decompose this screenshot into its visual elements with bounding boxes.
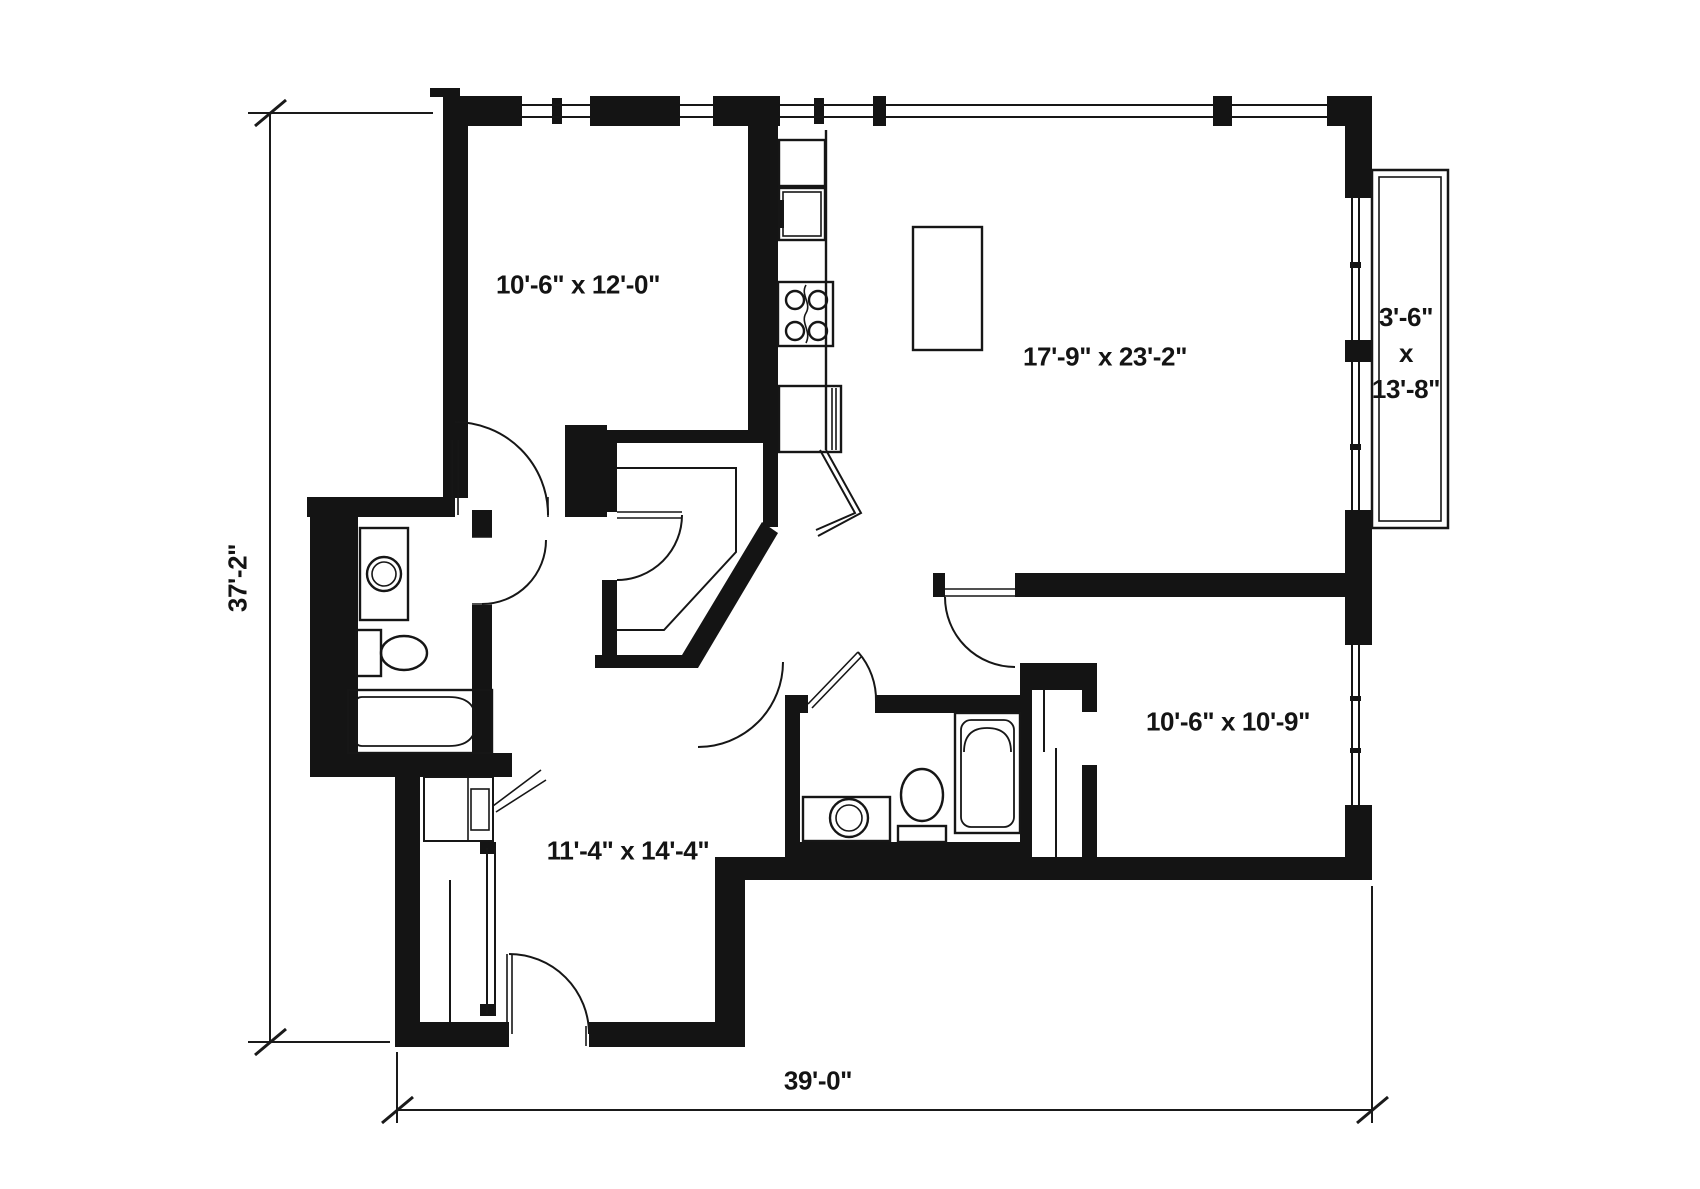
wall-pier bbox=[565, 425, 607, 517]
window-top-2 bbox=[680, 105, 713, 117]
wall-top-seg3 bbox=[713, 96, 780, 126]
window-mullion-1 bbox=[552, 98, 562, 124]
wall-left-bedroom1 bbox=[443, 96, 468, 498]
bedroom-3-dimensions-label: 10'-6" x 10'-9" bbox=[1146, 707, 1310, 738]
wall-top-corner bbox=[1327, 96, 1372, 126]
burner-4 bbox=[809, 322, 827, 340]
tub-2-head-curve bbox=[964, 728, 1011, 752]
kitchen-island bbox=[913, 227, 982, 350]
balcony-width-label: 3'-6" bbox=[1372, 299, 1440, 335]
refrigerator-inner bbox=[783, 192, 821, 236]
refrigerator bbox=[779, 188, 825, 240]
tub-1-outer bbox=[348, 690, 492, 753]
wall-top-cap bbox=[430, 88, 460, 97]
wall-top-seg5 bbox=[1213, 96, 1232, 126]
window-top-5 bbox=[1232, 105, 1327, 117]
wall-bed3-closet-stub-top bbox=[1082, 690, 1097, 712]
wall-bed3-closet-top bbox=[1020, 663, 1097, 690]
balcony-length-label: 13'-8" bbox=[1372, 371, 1440, 407]
floor-plan-drawing bbox=[0, 0, 1700, 1189]
bedroom1-door-arc bbox=[455, 422, 548, 515]
toilet-1-bowl bbox=[381, 636, 427, 670]
bedroom3-closet-slider bbox=[1044, 690, 1056, 857]
balcony-slider-lower bbox=[1352, 362, 1359, 510]
wall-bath1-right-a bbox=[472, 510, 492, 537]
overall-depth-dimension-label: 37'-2" bbox=[223, 544, 254, 612]
wall-bed3-closet-stub-bottom bbox=[1082, 765, 1097, 857]
dishwasher-lines bbox=[832, 388, 836, 450]
balcony-slider-upper bbox=[1352, 198, 1359, 340]
wall-bath2-top bbox=[875, 695, 1032, 713]
wall-right-upper bbox=[1345, 126, 1372, 198]
wall-living-bed3-b bbox=[1015, 573, 1347, 597]
bathroom2-door-leaf bbox=[808, 652, 862, 708]
wall-closet-left-b bbox=[602, 580, 617, 655]
living-dining-dimensions-label: 17'-9" x 23'-2" bbox=[1023, 342, 1187, 373]
window-top-4 bbox=[886, 105, 1213, 117]
bathroom1-door-arc bbox=[482, 540, 546, 604]
wardrobe-inner bbox=[471, 789, 489, 830]
toilet-1-tank bbox=[356, 630, 381, 676]
wall-bottom-step bbox=[715, 880, 745, 1047]
kitchen bbox=[778, 130, 982, 536]
upper-cabinet bbox=[779, 140, 825, 186]
bathroom-1 bbox=[348, 510, 492, 753]
bedroom-2-dimensions-label: 11'-4" x 14'-4" bbox=[547, 836, 710, 867]
balcony-separator-label: x bbox=[1372, 335, 1440, 371]
bedroom3-door-leaf bbox=[945, 589, 1015, 596]
window-top-3 bbox=[780, 105, 873, 117]
bedroom2-hall-door-arc bbox=[698, 662, 783, 747]
wall-top-seg2 bbox=[590, 96, 680, 126]
entry-door-arc bbox=[509, 954, 589, 1034]
burner-3 bbox=[786, 322, 804, 340]
wardrobe bbox=[424, 777, 493, 841]
bedroom-1-dimensions-label: 10'-6" x 12'-0" bbox=[496, 270, 660, 301]
wall-right-mid bbox=[1345, 510, 1372, 645]
bathroom2-door-arc bbox=[858, 652, 876, 702]
wall-closet-right bbox=[763, 443, 778, 527]
burner-2 bbox=[809, 291, 827, 309]
wall-bottom-left-b bbox=[589, 1022, 745, 1047]
wall-closet-bottom bbox=[595, 655, 698, 668]
floor-plan-page: 10'-6" x 12'-0" 17'-9" x 23'-2" 3'-6" x … bbox=[0, 0, 1700, 1189]
sink-2-inner bbox=[836, 805, 862, 831]
wall-kitchen bbox=[748, 126, 778, 443]
counter-angled-end bbox=[816, 450, 861, 536]
burner-1 bbox=[786, 291, 804, 309]
wall-bath2-left bbox=[785, 695, 800, 842]
tub-2-outer bbox=[955, 713, 1020, 833]
slider-mullion bbox=[1345, 340, 1372, 362]
range-divider bbox=[804, 285, 807, 343]
bedroom3-door-arc bbox=[945, 597, 1015, 667]
wall-top-seg4 bbox=[873, 96, 886, 126]
vanity-2 bbox=[803, 797, 890, 841]
tub-1-inner bbox=[356, 697, 476, 746]
wall-living-bed3-a bbox=[933, 573, 945, 597]
toilet-2-bowl bbox=[901, 769, 943, 821]
balcony-dimensions-label: 3'-6" x 13'-8" bbox=[1372, 299, 1440, 407]
window-mullion-2 bbox=[814, 98, 824, 124]
entry-door-leaf bbox=[507, 954, 512, 1034]
wall-bath2-bottom bbox=[785, 842, 1032, 880]
wall-bed3-closet-left bbox=[1020, 690, 1032, 842]
closet-door-leaf bbox=[617, 512, 682, 518]
sink-1-inner bbox=[372, 562, 396, 586]
wall-left-bumpout bbox=[310, 498, 358, 777]
walls bbox=[307, 88, 1372, 1047]
wall-bumpout-top bbox=[307, 497, 455, 517]
toilet-2-tank bbox=[898, 826, 946, 842]
bathroom-2 bbox=[803, 713, 1020, 842]
closet-door-arc bbox=[617, 515, 682, 580]
bedroom2-closet-slider bbox=[487, 848, 495, 1014]
wall-left-bedroom2 bbox=[395, 777, 420, 1047]
overall-width-dimension-label: 39'-0" bbox=[784, 1066, 852, 1097]
bedroom3-window bbox=[1352, 645, 1359, 805]
